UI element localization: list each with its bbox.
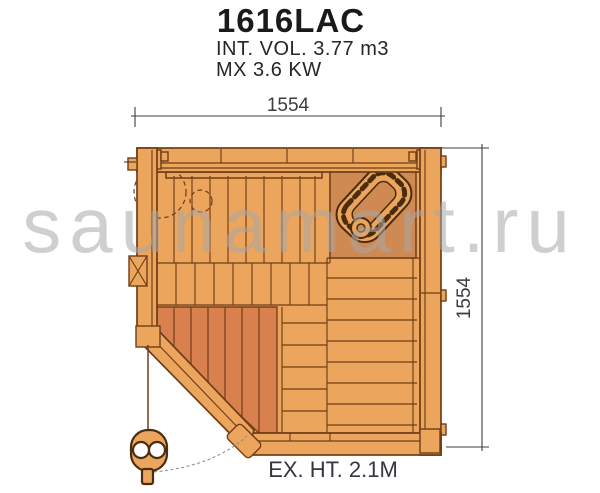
sauna-interior xyxy=(134,158,420,433)
top-wall xyxy=(137,148,441,172)
height-dimension-label: 1554 xyxy=(454,276,475,319)
interior-volume-label: INT. VOL. 3.77 m3 xyxy=(216,38,389,61)
dimension-height: 1554 xyxy=(441,144,489,451)
right-wall xyxy=(420,148,446,455)
exterior-height-label: EX. HT. 2.1M xyxy=(268,457,398,482)
sauna-plan-page: 1616LAC INT. VOL. 3.77 m3 MX 3.6 KW xyxy=(0,0,600,493)
model-title: 1616LAC xyxy=(0,2,582,40)
max-power-label: MX 3.6 KW xyxy=(216,59,322,82)
heater-area xyxy=(329,158,419,258)
left-wall xyxy=(128,148,157,334)
width-dimension-label: 1554 xyxy=(267,95,310,116)
bottom-wall xyxy=(248,429,441,455)
door-handle-icon xyxy=(131,430,167,484)
